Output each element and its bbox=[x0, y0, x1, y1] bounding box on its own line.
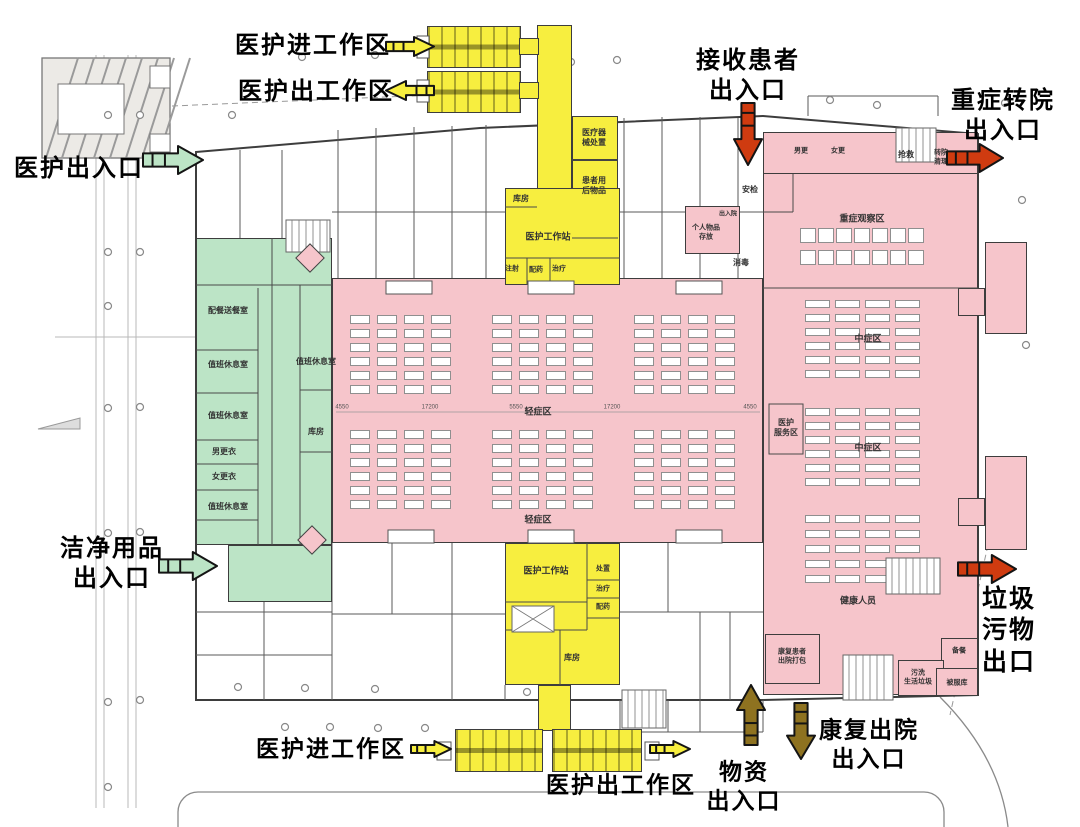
room-label: 个人物品 存放 bbox=[692, 224, 720, 242]
bed bbox=[546, 500, 566, 509]
bed bbox=[634, 357, 654, 366]
bed bbox=[805, 314, 830, 322]
bed bbox=[805, 515, 830, 523]
bed bbox=[404, 486, 424, 495]
bed bbox=[431, 343, 451, 352]
room-label: 医护工作站 bbox=[525, 231, 570, 242]
dimension-label: 17200 bbox=[604, 404, 621, 410]
bed bbox=[492, 430, 512, 439]
bed bbox=[835, 408, 860, 416]
bed bbox=[865, 478, 890, 486]
bed bbox=[546, 458, 566, 467]
room-label: 轻症区 bbox=[524, 514, 551, 525]
bed bbox=[492, 343, 512, 352]
bed bbox=[431, 444, 451, 453]
room-label: 注射 bbox=[505, 266, 519, 275]
bed bbox=[895, 342, 920, 350]
bed bbox=[805, 422, 830, 430]
bed bbox=[835, 464, 860, 472]
bed bbox=[573, 472, 593, 481]
bed bbox=[715, 458, 735, 467]
bed bbox=[805, 575, 830, 583]
staff-exit-left-arrow-icon bbox=[142, 145, 204, 175]
room-label: 女更衣 bbox=[212, 472, 236, 482]
bed bbox=[492, 371, 512, 380]
bed bbox=[519, 458, 539, 467]
bed bbox=[377, 343, 397, 352]
bed bbox=[661, 385, 681, 394]
bed bbox=[492, 444, 512, 453]
bed bbox=[546, 472, 566, 481]
room-label: 患者用 后物品 bbox=[582, 176, 606, 196]
bed bbox=[661, 444, 681, 453]
bed bbox=[404, 430, 424, 439]
bed bbox=[865, 560, 890, 568]
room-label: 男更 bbox=[794, 148, 808, 157]
bed bbox=[350, 430, 370, 439]
bed bbox=[854, 250, 870, 265]
bed bbox=[805, 370, 830, 378]
bed bbox=[835, 560, 860, 568]
bed bbox=[805, 450, 830, 458]
bed bbox=[800, 228, 816, 243]
recovery-discharge-arrow-icon bbox=[786, 702, 816, 760]
bed bbox=[715, 444, 735, 453]
bed bbox=[492, 500, 512, 509]
bed bbox=[908, 250, 924, 265]
bed bbox=[865, 545, 890, 553]
bed bbox=[872, 250, 888, 265]
room-label: 出入院 bbox=[719, 211, 737, 219]
bed bbox=[377, 357, 397, 366]
bed bbox=[895, 370, 920, 378]
bed bbox=[519, 329, 539, 338]
room-label: 安检 bbox=[742, 185, 758, 195]
bed bbox=[519, 486, 539, 495]
bed bbox=[431, 458, 451, 467]
bed bbox=[573, 329, 593, 338]
staff-enter-top-label: 医护进工作区 bbox=[235, 31, 391, 61]
bed bbox=[573, 357, 593, 366]
bed bbox=[835, 314, 860, 322]
bed bbox=[865, 464, 890, 472]
room-label: 男更衣 bbox=[212, 447, 236, 457]
bed bbox=[377, 444, 397, 453]
bed bbox=[546, 329, 566, 338]
bed bbox=[546, 343, 566, 352]
room-label: 女更 bbox=[831, 148, 845, 157]
dimension-label: 4550 bbox=[743, 404, 756, 410]
dimension-label: 5550 bbox=[509, 404, 522, 410]
room-label: 康复患者 出院打包 bbox=[778, 648, 806, 666]
bed bbox=[492, 315, 512, 324]
bed bbox=[661, 343, 681, 352]
bed bbox=[431, 472, 451, 481]
bed bbox=[350, 472, 370, 481]
bed bbox=[805, 530, 830, 538]
bed bbox=[492, 357, 512, 366]
room-label: 备餐 bbox=[952, 648, 966, 657]
bed bbox=[431, 357, 451, 366]
severe-transfer-arrow-icon bbox=[946, 143, 1004, 173]
bed bbox=[573, 458, 593, 467]
bed bbox=[634, 472, 654, 481]
bed bbox=[865, 422, 890, 430]
bed bbox=[573, 430, 593, 439]
bed bbox=[431, 371, 451, 380]
bed bbox=[835, 515, 860, 523]
bed bbox=[492, 385, 512, 394]
bed bbox=[350, 500, 370, 509]
bed bbox=[835, 478, 860, 486]
bed bbox=[715, 329, 735, 338]
bed bbox=[404, 357, 424, 366]
bed bbox=[634, 444, 654, 453]
bed bbox=[519, 444, 539, 453]
bed bbox=[715, 371, 735, 380]
bed bbox=[800, 250, 816, 265]
bed bbox=[715, 315, 735, 324]
bed bbox=[661, 486, 681, 495]
bed bbox=[634, 329, 654, 338]
staff-enter-bottom-label: 医护进工作区 bbox=[256, 735, 406, 764]
bed bbox=[715, 385, 735, 394]
bed bbox=[377, 371, 397, 380]
bed bbox=[805, 300, 830, 308]
staff-enter-top-arrow-icon bbox=[385, 36, 435, 57]
bed bbox=[519, 385, 539, 394]
bed bbox=[546, 357, 566, 366]
room-label: 库房 bbox=[564, 653, 580, 663]
bed bbox=[377, 315, 397, 324]
bed bbox=[519, 500, 539, 509]
bed bbox=[836, 250, 852, 265]
room-label: 医护 服务区 bbox=[774, 418, 798, 438]
bed bbox=[661, 458, 681, 467]
bed bbox=[805, 545, 830, 553]
bed bbox=[519, 430, 539, 439]
bed bbox=[404, 472, 424, 481]
bed bbox=[404, 371, 424, 380]
bed bbox=[805, 464, 830, 472]
room-label: 消毒 bbox=[733, 258, 749, 268]
bed bbox=[431, 486, 451, 495]
bed bbox=[688, 486, 708, 495]
bed bbox=[492, 329, 512, 338]
hospital-floor-plan: 配餐送餐室值班休息室值班休息室男更衣女更衣值班休息室值班休息室库房库房医护工作站… bbox=[0, 0, 1080, 827]
room-label: 处置 bbox=[596, 566, 610, 575]
bed bbox=[519, 315, 539, 324]
bed bbox=[895, 560, 920, 568]
dimension-label: 17200 bbox=[422, 404, 439, 410]
bed bbox=[634, 385, 654, 394]
bed bbox=[546, 444, 566, 453]
room-label: 被服库 bbox=[947, 680, 968, 689]
bed bbox=[350, 343, 370, 352]
bed bbox=[404, 329, 424, 338]
bed bbox=[895, 408, 920, 416]
clean-supplies-label: 洁净用品 出入口 bbox=[60, 534, 164, 594]
zone-corridor-top bbox=[537, 25, 572, 191]
bed bbox=[546, 486, 566, 495]
bed bbox=[377, 486, 397, 495]
bed bbox=[688, 343, 708, 352]
receive-patients-arrow-icon bbox=[733, 102, 763, 166]
zone-clean-supply-green bbox=[228, 545, 332, 602]
zone-module-top-a bbox=[427, 26, 521, 68]
receive-patients-label: 接收患者 出入口 bbox=[696, 46, 800, 106]
bed bbox=[377, 472, 397, 481]
bed bbox=[573, 315, 593, 324]
bed bbox=[872, 228, 888, 243]
bed bbox=[350, 486, 370, 495]
bed bbox=[895, 530, 920, 538]
zone-staff-green bbox=[196, 238, 332, 545]
zone-toilet-link-upper bbox=[958, 288, 985, 316]
bed bbox=[865, 575, 890, 583]
bed bbox=[835, 575, 860, 583]
zone-module-bot-a bbox=[455, 729, 543, 772]
bed bbox=[431, 385, 451, 394]
bed bbox=[573, 486, 593, 495]
bed bbox=[350, 444, 370, 453]
bed bbox=[377, 458, 397, 467]
bed bbox=[715, 472, 735, 481]
bed bbox=[661, 430, 681, 439]
bed bbox=[634, 371, 654, 380]
bed bbox=[895, 464, 920, 472]
bed bbox=[688, 385, 708, 394]
recovery-discharge-label: 康复出院 出入口 bbox=[819, 715, 919, 773]
room-label: 值班休息室 bbox=[296, 357, 336, 367]
bed bbox=[634, 343, 654, 352]
staff-exit-left-label: 医护出入口 bbox=[14, 154, 144, 184]
bed bbox=[404, 385, 424, 394]
bed bbox=[854, 228, 870, 243]
room-label: 治疗 bbox=[596, 586, 610, 595]
bed bbox=[634, 430, 654, 439]
waste-arrow-icon bbox=[957, 554, 1017, 584]
supplies-arrow-icon bbox=[736, 684, 766, 746]
bed bbox=[865, 314, 890, 322]
bed bbox=[519, 371, 539, 380]
room-label: 值班休息室 bbox=[208, 502, 248, 512]
bed bbox=[895, 300, 920, 308]
severe-transfer-label: 重症转院 出入口 bbox=[951, 86, 1055, 146]
bed bbox=[546, 315, 566, 324]
bed bbox=[661, 329, 681, 338]
zone-module-bot-b bbox=[552, 729, 642, 772]
bed bbox=[895, 515, 920, 523]
bed bbox=[818, 250, 834, 265]
bed bbox=[688, 329, 708, 338]
bed bbox=[377, 430, 397, 439]
bed bbox=[865, 356, 890, 364]
bed bbox=[688, 430, 708, 439]
room-label: 中症区 bbox=[854, 442, 881, 453]
bed bbox=[661, 500, 681, 509]
bed bbox=[835, 300, 860, 308]
bed bbox=[805, 342, 830, 350]
bed bbox=[895, 545, 920, 553]
bed bbox=[546, 371, 566, 380]
room-label: 库房 bbox=[513, 194, 529, 204]
bed bbox=[895, 356, 920, 364]
bed bbox=[350, 458, 370, 467]
bed bbox=[573, 371, 593, 380]
bed bbox=[431, 430, 451, 439]
zone-workstation-bottom bbox=[505, 543, 620, 685]
bed bbox=[818, 228, 834, 243]
clean-supplies-arrow-icon bbox=[158, 551, 218, 581]
bed bbox=[350, 329, 370, 338]
bed bbox=[634, 486, 654, 495]
zone-toilet-lower bbox=[985, 456, 1027, 550]
bed bbox=[377, 329, 397, 338]
bed bbox=[661, 371, 681, 380]
bed bbox=[404, 500, 424, 509]
bed bbox=[715, 343, 735, 352]
bed bbox=[835, 370, 860, 378]
bed bbox=[661, 472, 681, 481]
bed bbox=[519, 343, 539, 352]
bed bbox=[492, 486, 512, 495]
bed bbox=[865, 300, 890, 308]
bed bbox=[661, 315, 681, 324]
bed bbox=[895, 436, 920, 444]
bed bbox=[715, 500, 735, 509]
bed bbox=[835, 356, 860, 364]
zone-corridor-bottom bbox=[538, 685, 571, 731]
zone-link-top-a bbox=[519, 38, 539, 55]
room-label: 库房 bbox=[308, 427, 324, 437]
bed bbox=[573, 444, 593, 453]
bed bbox=[546, 430, 566, 439]
bed bbox=[404, 343, 424, 352]
bed bbox=[377, 385, 397, 394]
room-label: 配药 bbox=[529, 267, 543, 276]
bed bbox=[835, 422, 860, 430]
bed bbox=[715, 486, 735, 495]
room-label: 治疗 bbox=[552, 266, 566, 275]
bed bbox=[634, 315, 654, 324]
bed bbox=[805, 328, 830, 336]
bed bbox=[573, 385, 593, 394]
room-label: 配药 bbox=[596, 604, 610, 613]
room-label: 中症区 bbox=[854, 333, 881, 344]
room-label: 轻症区 bbox=[524, 406, 551, 417]
zone-link-top-b bbox=[519, 82, 539, 99]
zone-toilet-link-lower bbox=[958, 498, 985, 526]
bed bbox=[688, 500, 708, 509]
bed bbox=[350, 357, 370, 366]
bed bbox=[688, 444, 708, 453]
bed bbox=[377, 500, 397, 509]
staff-exit-top-label: 医护出工作区 bbox=[238, 77, 394, 107]
bed bbox=[492, 458, 512, 467]
bed bbox=[634, 458, 654, 467]
room-label: 医疗器 械处置 bbox=[582, 128, 606, 148]
bed bbox=[715, 430, 735, 439]
bed bbox=[805, 560, 830, 568]
dimension-label: 4550 bbox=[335, 404, 348, 410]
bed bbox=[404, 458, 424, 467]
room-label: 医护工作站 bbox=[523, 565, 568, 576]
bed bbox=[835, 530, 860, 538]
staff-exit-bottom-label: 医护出工作区 bbox=[546, 771, 696, 800]
bed bbox=[865, 515, 890, 523]
bed bbox=[492, 472, 512, 481]
bed bbox=[573, 343, 593, 352]
room-label: 值班休息室 bbox=[208, 411, 248, 421]
bed bbox=[835, 545, 860, 553]
bed bbox=[688, 458, 708, 467]
bed bbox=[546, 385, 566, 394]
bed bbox=[895, 450, 920, 458]
bed bbox=[895, 478, 920, 486]
waste-label: 垃圾 污物 出口 bbox=[982, 584, 1036, 678]
bed bbox=[431, 315, 451, 324]
bed bbox=[895, 314, 920, 322]
bed bbox=[865, 530, 890, 538]
room-label: 值班休息室 bbox=[208, 360, 248, 370]
bed bbox=[519, 357, 539, 366]
bed bbox=[836, 228, 852, 243]
bed bbox=[688, 472, 708, 481]
bed bbox=[895, 328, 920, 336]
bed bbox=[688, 315, 708, 324]
room-label: 重症观察区 bbox=[839, 213, 884, 224]
bed bbox=[688, 371, 708, 380]
zone-module-top-b bbox=[427, 71, 521, 113]
bed bbox=[805, 356, 830, 364]
bed bbox=[688, 357, 708, 366]
bed bbox=[805, 478, 830, 486]
room-label: 污洗 生活垃圾 bbox=[904, 669, 932, 687]
zone-toilet-upper bbox=[985, 242, 1027, 334]
bed bbox=[404, 315, 424, 324]
bed bbox=[908, 228, 924, 243]
bed bbox=[350, 315, 370, 324]
bed bbox=[573, 500, 593, 509]
bed bbox=[890, 228, 906, 243]
bed bbox=[805, 408, 830, 416]
supplies-label: 物资 出入口 bbox=[707, 757, 782, 815]
bed bbox=[350, 371, 370, 380]
bed bbox=[865, 408, 890, 416]
bed bbox=[895, 422, 920, 430]
bed bbox=[431, 329, 451, 338]
bed bbox=[890, 250, 906, 265]
bed bbox=[865, 370, 890, 378]
staff-exit-bottom-arrow-icon bbox=[649, 740, 691, 758]
bed bbox=[805, 436, 830, 444]
bed bbox=[895, 575, 920, 583]
bed bbox=[350, 385, 370, 394]
bed bbox=[715, 357, 735, 366]
staff-enter-bottom-arrow-icon bbox=[410, 740, 452, 758]
room-label: 配餐送餐室 bbox=[208, 306, 248, 316]
bed bbox=[661, 357, 681, 366]
bed bbox=[404, 444, 424, 453]
bed bbox=[634, 500, 654, 509]
room-label: 健康人员 bbox=[840, 595, 876, 606]
room-label: 抢救 bbox=[898, 150, 914, 160]
bed bbox=[519, 472, 539, 481]
bed bbox=[431, 500, 451, 509]
